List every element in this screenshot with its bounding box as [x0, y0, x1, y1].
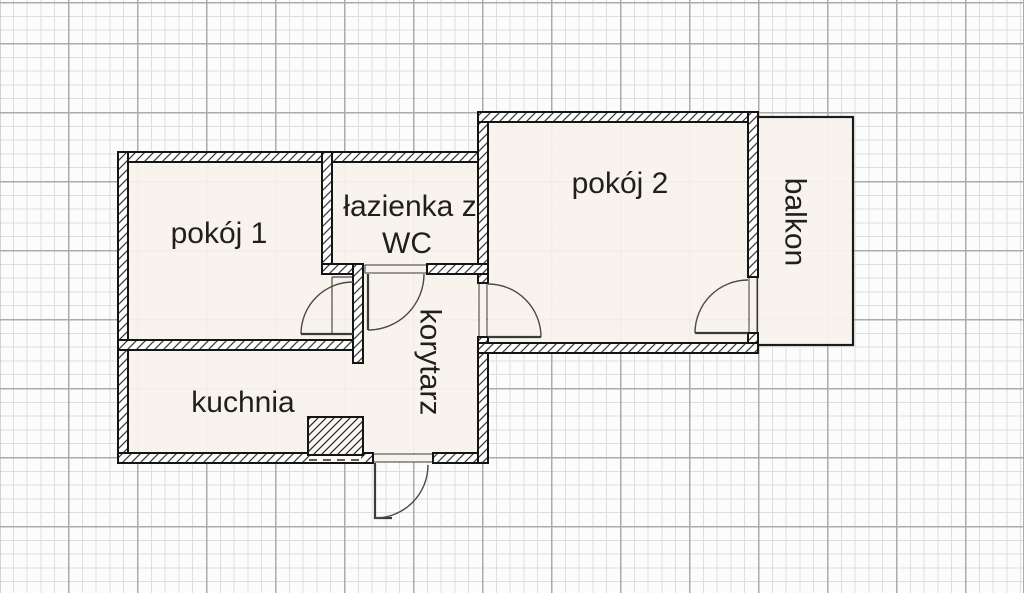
wall-lazienka-bottom-left [322, 264, 353, 274]
wall-lazienka-bottom-right [427, 264, 488, 274]
room-label-pokoj-2: pokój 2 [572, 167, 669, 200]
room-label-pokoj-1: pokój 1 [171, 217, 268, 250]
wall-corridor-stub [353, 264, 363, 363]
room-label-kuchnia: kuchnia [191, 386, 295, 419]
door-arc-entrance [375, 465, 428, 518]
doorway-balkon [749, 277, 757, 333]
room-pokoj-2-interior [488, 122, 748, 343]
wall-lazienka-left [322, 152, 332, 274]
wall-top-left-block [118, 152, 488, 162]
wall-shared-lower [478, 337, 488, 463]
chimney-block [308, 417, 363, 455]
wall-pokoj-2-top [478, 112, 758, 122]
wall-pokoj-2-bottom [478, 343, 758, 353]
room-label-lazienka-line2: WC [382, 227, 432, 260]
wall-shared-upper [478, 112, 488, 283]
chimney-wall-gap [310, 456, 361, 462]
doorway-pokoj-2 [479, 283, 487, 337]
doorway-lazienka [365, 265, 427, 273]
room-label-balkon: balkon [779, 178, 812, 266]
wall-left-outer [118, 152, 128, 463]
door-leaf-entrance [375, 463, 392, 519]
door-entrance [375, 463, 428, 519]
room-label-lazienka-line1: łazienka z [343, 190, 476, 223]
wall-kuchnia-divider [118, 340, 353, 350]
floor-plan-canvas: pokój 1 łazienka z WC pokój 2 balkon kuc… [0, 0, 1024, 593]
room-label-korytarz: korytarz [414, 309, 447, 416]
wall-pokoj-2-right-upper [748, 112, 758, 277]
floor-plan-drawing: pokój 1 łazienka z WC pokój 2 balkon kuc… [0, 0, 1024, 593]
doorway-entrance [373, 454, 433, 462]
